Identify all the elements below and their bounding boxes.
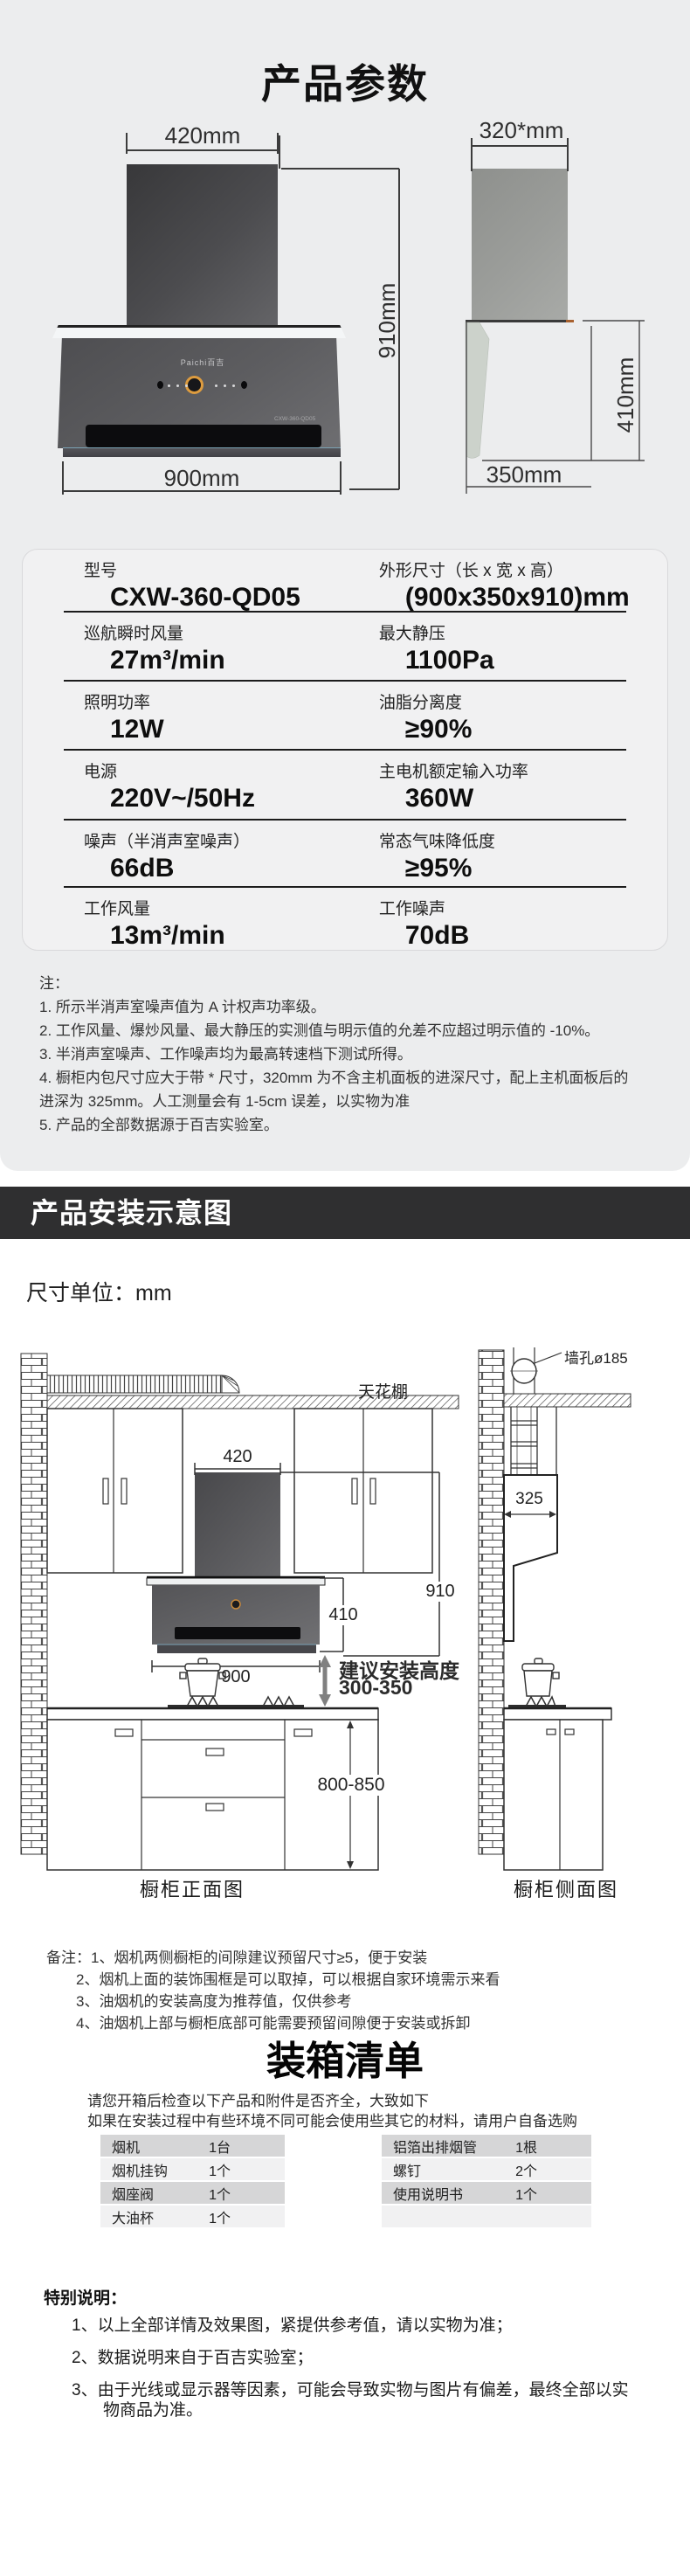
- install-dim-900: 900: [208, 1667, 264, 1687]
- install-dim-410: 410: [321, 1605, 365, 1625]
- install-dim-325: 325: [512, 1490, 547, 1509]
- spec-value: ≥95%: [379, 854, 626, 883]
- item-name: 螺钉: [382, 2159, 421, 2180]
- spec-label: 常态气味降低度: [379, 828, 626, 852]
- spec-value: 360W: [379, 784, 626, 814]
- hood-glass-panel-image: [86, 425, 321, 447]
- side-bottom-dimension: 350mm: [463, 461, 585, 488]
- item-qty: 2个: [515, 2159, 591, 2180]
- spec-value: 1100Pa: [379, 646, 626, 675]
- hood-power-dot-icon: [157, 381, 163, 389]
- item-name: 使用说明书: [382, 2183, 463, 2204]
- packing-intro: 请您开箱后检查以下产品和附件是否齐全，大致如下 如果在安装过程中有些环境不同可能…: [87, 2091, 577, 2131]
- spec-label: 噪声（半消声室噪声）: [84, 828, 356, 852]
- spec-label: 最大静压: [379, 620, 626, 644]
- item-name: 烟座阀: [100, 2183, 154, 2204]
- spec-value: (900x350x910)mm: [379, 583, 626, 613]
- list-item: [382, 2206, 591, 2227]
- note-item: 4. 橱柜内包尺寸应大于带 * 尺寸，320mm 为不含主机面板的进深尺寸，配上…: [39, 1066, 633, 1113]
- packing-list-title: 装箱清单: [0, 2029, 690, 2086]
- list-item: 螺钉2个: [382, 2158, 591, 2180]
- spec-label: 主电机额定输入功率: [379, 758, 626, 782]
- spec-value: 27m³/min: [84, 646, 356, 675]
- spec-label: 巡航瞬时风量: [84, 620, 356, 644]
- install-section-banner: 产品安装示意图: [0, 1187, 690, 1239]
- list-item: 烟座阀1个: [100, 2182, 285, 2204]
- install-dim-420: 420: [206, 1447, 269, 1467]
- spec-value: 66dB: [84, 854, 356, 883]
- note-item: 1. 所示半消声室噪声值为 A 计权声功率级。: [39, 995, 633, 1019]
- list-item: 烟机1台: [100, 2135, 285, 2157]
- page-title: 产品参数: [0, 52, 690, 110]
- packing-intro-line: 如果在安装过程中有些环境不同可能会使用些其它的材料，请用户自备选购: [87, 2111, 577, 2131]
- item-name: 烟机挂钩: [100, 2159, 168, 2180]
- item-qty: 1个: [209, 2159, 285, 2180]
- spec-label: 工作噪声: [379, 896, 626, 919]
- note-item: 3. 半消声室噪声、工作噪声均为最高转速档下测试所得。: [39, 1042, 633, 1066]
- ceiling-label: 天花棚: [358, 1379, 408, 1402]
- dimension-unit-label: 尺寸单位：mm: [26, 1276, 172, 1307]
- packing-table-right: 铝箔出排烟管1根 螺钉2个 使用说明书1个: [382, 2135, 591, 2229]
- remarks-heading: 备注：: [46, 1949, 91, 1966]
- item-qty: 1个: [515, 2183, 591, 2204]
- item-qty: 1根: [515, 2136, 591, 2157]
- list-item: 大油杯1个: [100, 2206, 285, 2227]
- item-qty: 1个: [209, 2183, 285, 2204]
- notes-block: 注： 1. 所示半消声室噪声值为 A 计权声功率级。 2. 工作风量、爆炒风量、…: [39, 972, 633, 1137]
- spec-value: CXW-360-QD05: [84, 583, 356, 613]
- table-row: 噪声（半消声室噪声）66dB 常态气味降低度≥95%: [64, 821, 626, 889]
- item-name: 烟机: [100, 2136, 140, 2157]
- hood-front-canopy-image: [52, 325, 346, 338]
- special-note-item: 2、数据说明来自于百吉实验室；: [72, 2348, 638, 2368]
- side-height-dimension: 410mm: [612, 343, 635, 447]
- list-item: 铝箔出排烟管1根: [382, 2135, 591, 2157]
- side-depth-dimension: 320*mm: [460, 117, 583, 144]
- note-item: 5. 产品的全部数据源于百吉实验室。: [39, 1113, 633, 1137]
- special-note-item: 1、以上全部详情及效果图，紧提供参考值，请以实物为准；: [72, 2316, 638, 2336]
- table-row: 型号CXW-360-QD05 外形尺寸（长 x 宽 x 高）(900x350x9…: [64, 550, 626, 613]
- install-section-title: 产品安装示意图: [0, 1187, 690, 1239]
- hood-model-badge: CXW-360-QD05: [274, 416, 330, 422]
- notes-heading: 注：: [39, 972, 633, 995]
- table-row: 工作风量13m³/min 工作噪声70dB: [64, 888, 626, 950]
- special-notes-heading: 特别说明：: [44, 2285, 127, 2309]
- hood-light-dot-icon: [241, 381, 247, 389]
- hood-right-buttons-icon: [215, 384, 235, 387]
- spec-value: 12W: [84, 715, 356, 744]
- table-row: 电源220V~/50Hz 主电机额定输入功率360W: [64, 751, 626, 821]
- side-view-caption: 橱柜侧面图: [492, 1874, 640, 1902]
- spec-value: ≥90%: [379, 715, 626, 744]
- front-bottom-dimension: 900mm: [141, 465, 263, 492]
- packing-table-left: 烟机1台 烟机挂钩1个 烟座阀1个 大油杯1个: [100, 2135, 285, 2229]
- item-name: 铝箔出排烟管: [382, 2136, 477, 2157]
- table-row: 照明功率12W 油脂分离度≥90%: [64, 682, 626, 751]
- spec-label: 油脂分离度: [379, 689, 626, 713]
- install-dim-910: 910: [424, 1582, 457, 1602]
- spec-value: 220V~/50Hz: [84, 784, 356, 814]
- recommended-height-value: 300-350: [339, 1676, 412, 1700]
- item-qty: 1台: [209, 2136, 285, 2157]
- hood-control-knob-icon: [185, 376, 204, 394]
- spec-table: 型号CXW-360-QD05 外形尺寸（长 x 宽 x 高）(900x350x9…: [22, 549, 668, 951]
- packing-intro-line: 请您开箱后检查以下产品和附件是否齐全，大致如下: [87, 2091, 577, 2111]
- spec-label: 工作风量: [84, 896, 356, 919]
- spec-label: 外形尺寸（长 x 宽 x 高）: [379, 557, 626, 581]
- special-notes: 1、以上全部详情及效果图，紧提供参考值，请以实物为准； 2、数据说明来自于百吉实…: [72, 2316, 638, 2433]
- table-row: 巡航瞬时风量27m³/min 最大静压1100Pa: [64, 613, 626, 682]
- special-note-item: 3、由于光线或显示器等因素，可能会导致实物与图片有偏差，最终全部以实物商品为准。: [72, 2380, 638, 2420]
- list-item: 使用说明书1个: [382, 2182, 591, 2204]
- note-item: 2. 工作风量、爆炒风量、最大静压的实测值与明示值的允差不应超过明示值的 -10…: [39, 1019, 633, 1042]
- hood-base-strip-image: [63, 447, 341, 457]
- item-qty: 1个: [209, 2206, 285, 2227]
- spec-label: 照明功率: [84, 689, 356, 713]
- spec-label: 电源: [84, 758, 356, 782]
- list-item: 烟机挂钩1个: [100, 2158, 285, 2180]
- front-width-dimension: 420mm: [141, 122, 264, 149]
- front-view-caption: 橱柜正面图: [105, 1874, 279, 1902]
- wall-hole-label: 墙孔ø185: [564, 1346, 628, 1368]
- hood-brand-logo: Paichi百吉: [131, 357, 274, 368]
- remark-item: 2、烟机上面的装饰围框是可以取掉，可以根据自家环境需示来看: [76, 1969, 500, 1991]
- remark-item: 1、烟机两侧橱柜的间隙建议预留尺寸≥5，便于安装: [91, 1949, 427, 1966]
- spec-value: 70dB: [379, 921, 626, 951]
- hood-front-chimney-image: [127, 164, 278, 326]
- spec-value: 13m³/min: [84, 921, 356, 951]
- hood-side-chimney-image: [472, 169, 568, 320]
- spec-label: 型号: [84, 557, 356, 581]
- front-height-dimension: 910mm: [374, 268, 397, 373]
- remark-item: 3、油烟机的安装高度为推荐值，仅供参考: [76, 1991, 500, 2012]
- hood-left-buttons-icon: [168, 384, 188, 387]
- install-dim-800-850: 800-850: [313, 1775, 390, 1796]
- install-remarks: 备注：1、烟机两侧橱柜的间隙建议预留尺寸≥5，便于安装 2、烟机上面的装饰围框是…: [46, 1947, 500, 2034]
- item-name: 大油杯: [100, 2206, 154, 2227]
